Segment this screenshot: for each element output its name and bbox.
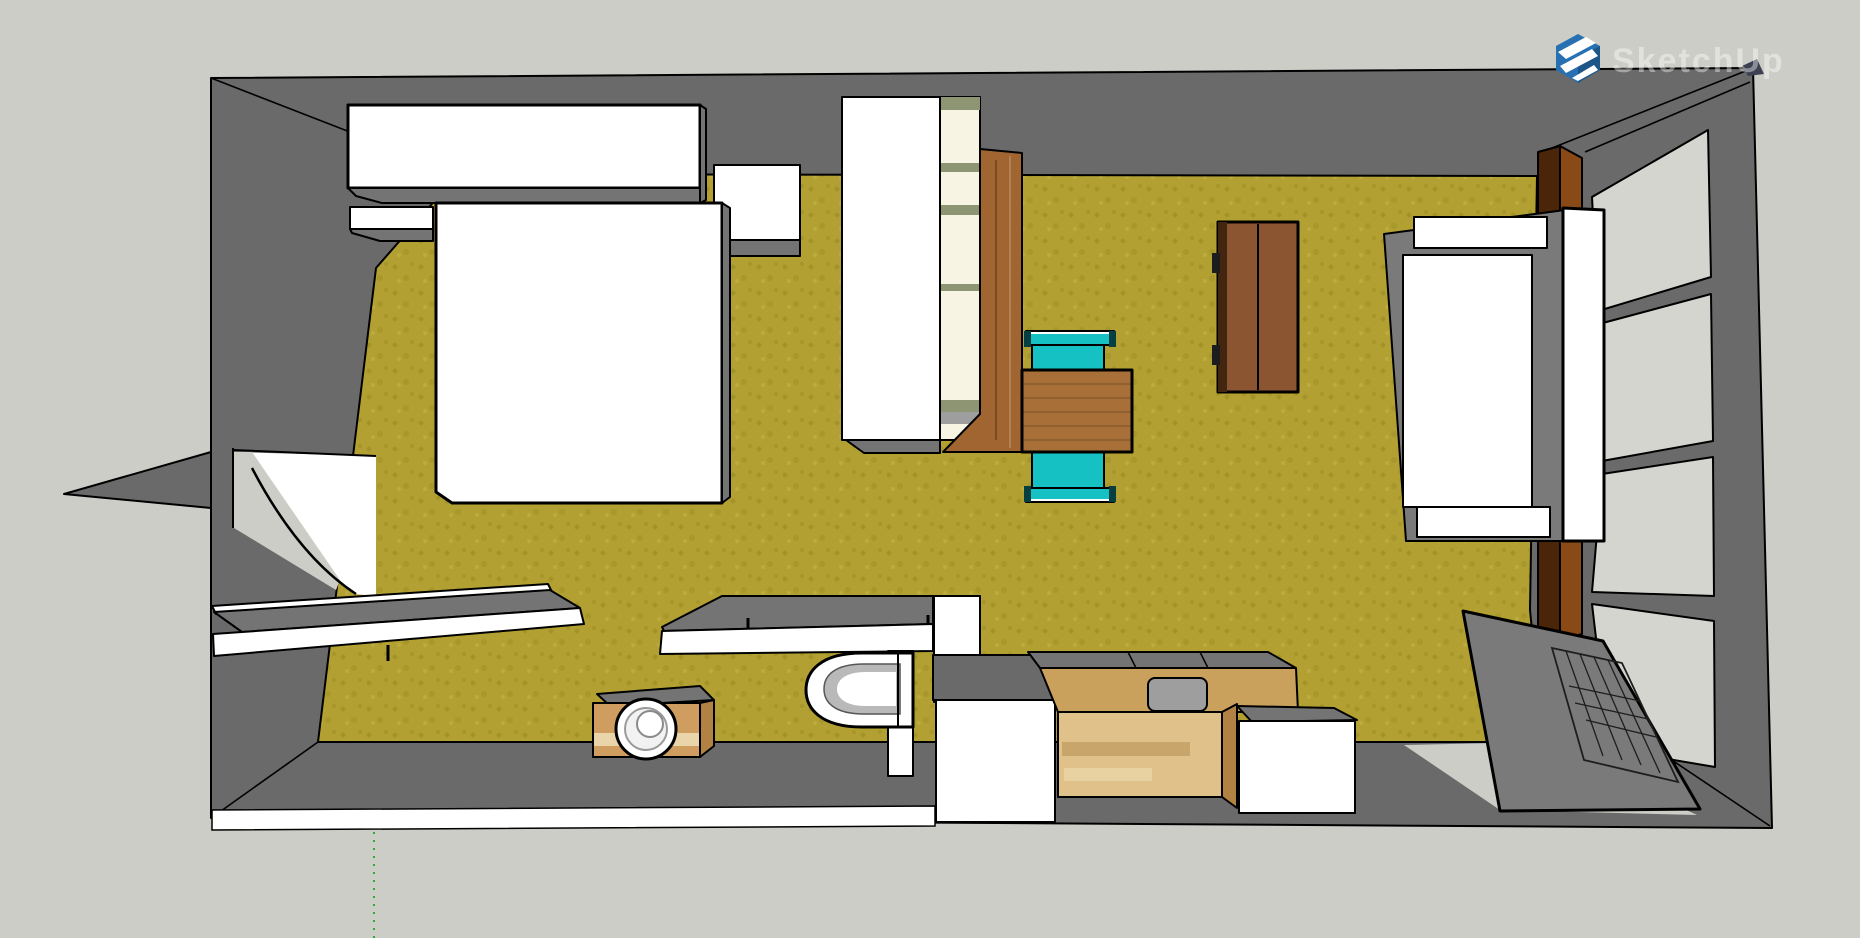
- speaker-side[interactable]: [700, 700, 714, 757]
- dresser[interactable]: [1212, 222, 1298, 392]
- chair-leg: [1024, 331, 1031, 347]
- window-pane-2[interactable]: [1599, 294, 1713, 461]
- sofa-cushion[interactable]: [1403, 255, 1532, 507]
- counter-grain: [1062, 742, 1190, 756]
- shelf-edge: [940, 205, 980, 215]
- sofa-backrest[interactable]: [1563, 208, 1604, 541]
- chair-south[interactable]: [1024, 452, 1116, 502]
- nightstand-left-top[interactable]: [350, 207, 433, 229]
- shelf-edge: [940, 97, 980, 110]
- shelf-edge: [940, 284, 980, 291]
- appliance-front[interactable]: [1239, 721, 1355, 813]
- south-wall-cap: [212, 806, 935, 830]
- sofa[interactable]: [1384, 208, 1604, 541]
- fridge-cabinet[interactable]: [936, 700, 1055, 822]
- sketchup-watermark: SketchUp: [1612, 42, 1785, 80]
- chair-leg: [1109, 331, 1116, 347]
- dresser-hinge: [1212, 345, 1220, 365]
- model-viewport[interactable]: SketchUp: [0, 0, 1860, 938]
- sofa-armrest-bottom[interactable]: [1417, 507, 1550, 537]
- counter-grain: [1064, 768, 1152, 781]
- chair-south-seat[interactable]: [1032, 452, 1104, 490]
- shelf-edge: [940, 400, 980, 412]
- chair-north[interactable]: [1024, 331, 1116, 372]
- dresser-edge: [1218, 222, 1227, 392]
- dresser-hinge: [1212, 253, 1220, 273]
- wardrobe-unit[interactable]: [842, 97, 1022, 453]
- shelf-column[interactable]: [940, 97, 980, 440]
- bed-mattress[interactable]: [436, 203, 722, 503]
- sink-module[interactable]: [1148, 678, 1207, 711]
- bed-headboard-side[interactable]: [700, 105, 706, 203]
- toilet-bowl-inner: [837, 672, 896, 706]
- bed-headboard-front[interactable]: [348, 188, 700, 203]
- window-pane-3[interactable]: [1592, 457, 1714, 596]
- sofa-armrest-top[interactable]: [1414, 217, 1547, 248]
- chair-leg: [1109, 486, 1116, 502]
- chair-leg: [1024, 486, 1031, 502]
- counter-side[interactable]: [1222, 704, 1237, 808]
- speaker-box[interactable]: [593, 686, 714, 759]
- chair-north-seat[interactable]: [1032, 344, 1104, 372]
- wardrobe-top[interactable]: [842, 97, 940, 440]
- counter-back-edge[interactable]: [1028, 652, 1296, 668]
- bed-headboard-top[interactable]: [348, 105, 700, 188]
- speaker-cone-center: [637, 711, 663, 737]
- shelf-edge: [940, 163, 980, 172]
- bed-mattress-side[interactable]: [722, 203, 730, 503]
- wardrobe-front[interactable]: [846, 440, 940, 453]
